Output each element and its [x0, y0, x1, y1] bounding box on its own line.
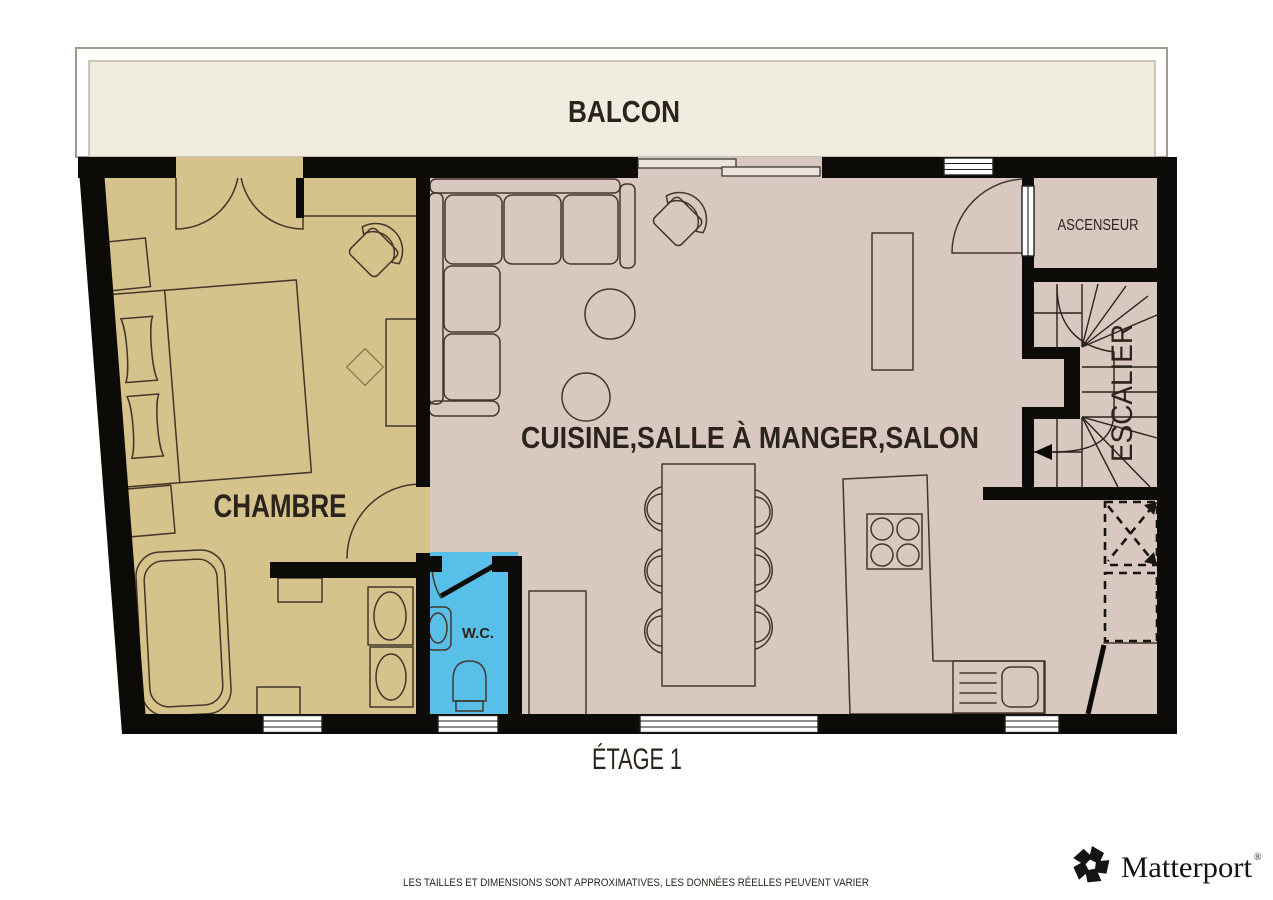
- balcony-label: BALCON: [568, 94, 680, 129]
- matterport-pinwheel-icon: [1069, 846, 1113, 888]
- registered-mark: ®: [1254, 852, 1262, 863]
- floor-plan-page: BALCON: [0, 0, 1273, 900]
- matterport-logo: Matterport ®: [1069, 846, 1262, 888]
- window-icon: [1005, 716, 1059, 733]
- elevator-door-icon: [1022, 186, 1034, 256]
- bedroom-floor: [95, 160, 430, 726]
- bedroom-label: CHAMBRE: [214, 488, 347, 524]
- sliding-door-icon: [638, 157, 822, 178]
- elevator-label: ASCENSEUR: [1058, 217, 1139, 234]
- window-icon: [263, 716, 322, 733]
- balcony: BALCON: [76, 48, 1167, 157]
- balcony-door-opening: [176, 157, 303, 178]
- floor-plan-canvas: BALCON: [0, 0, 1273, 900]
- stairs-label: ESCALIER: [1106, 324, 1139, 462]
- wc-label: W.C.: [462, 625, 494, 642]
- brand-wordmark: Matterport: [1121, 851, 1253, 884]
- floor-label: ÉTAGE 1: [592, 743, 682, 776]
- living-label: CUISINE,SALLE À MANGER,SALON: [521, 420, 979, 455]
- disclaimer-text: LES TAILLES ET DIMENSIONS SONT APPROXIMA…: [403, 876, 869, 889]
- window-icon: [438, 716, 498, 733]
- window-icon: [640, 716, 818, 733]
- window-icon: [944, 158, 993, 175]
- bedroom-door-opening: [416, 487, 430, 553]
